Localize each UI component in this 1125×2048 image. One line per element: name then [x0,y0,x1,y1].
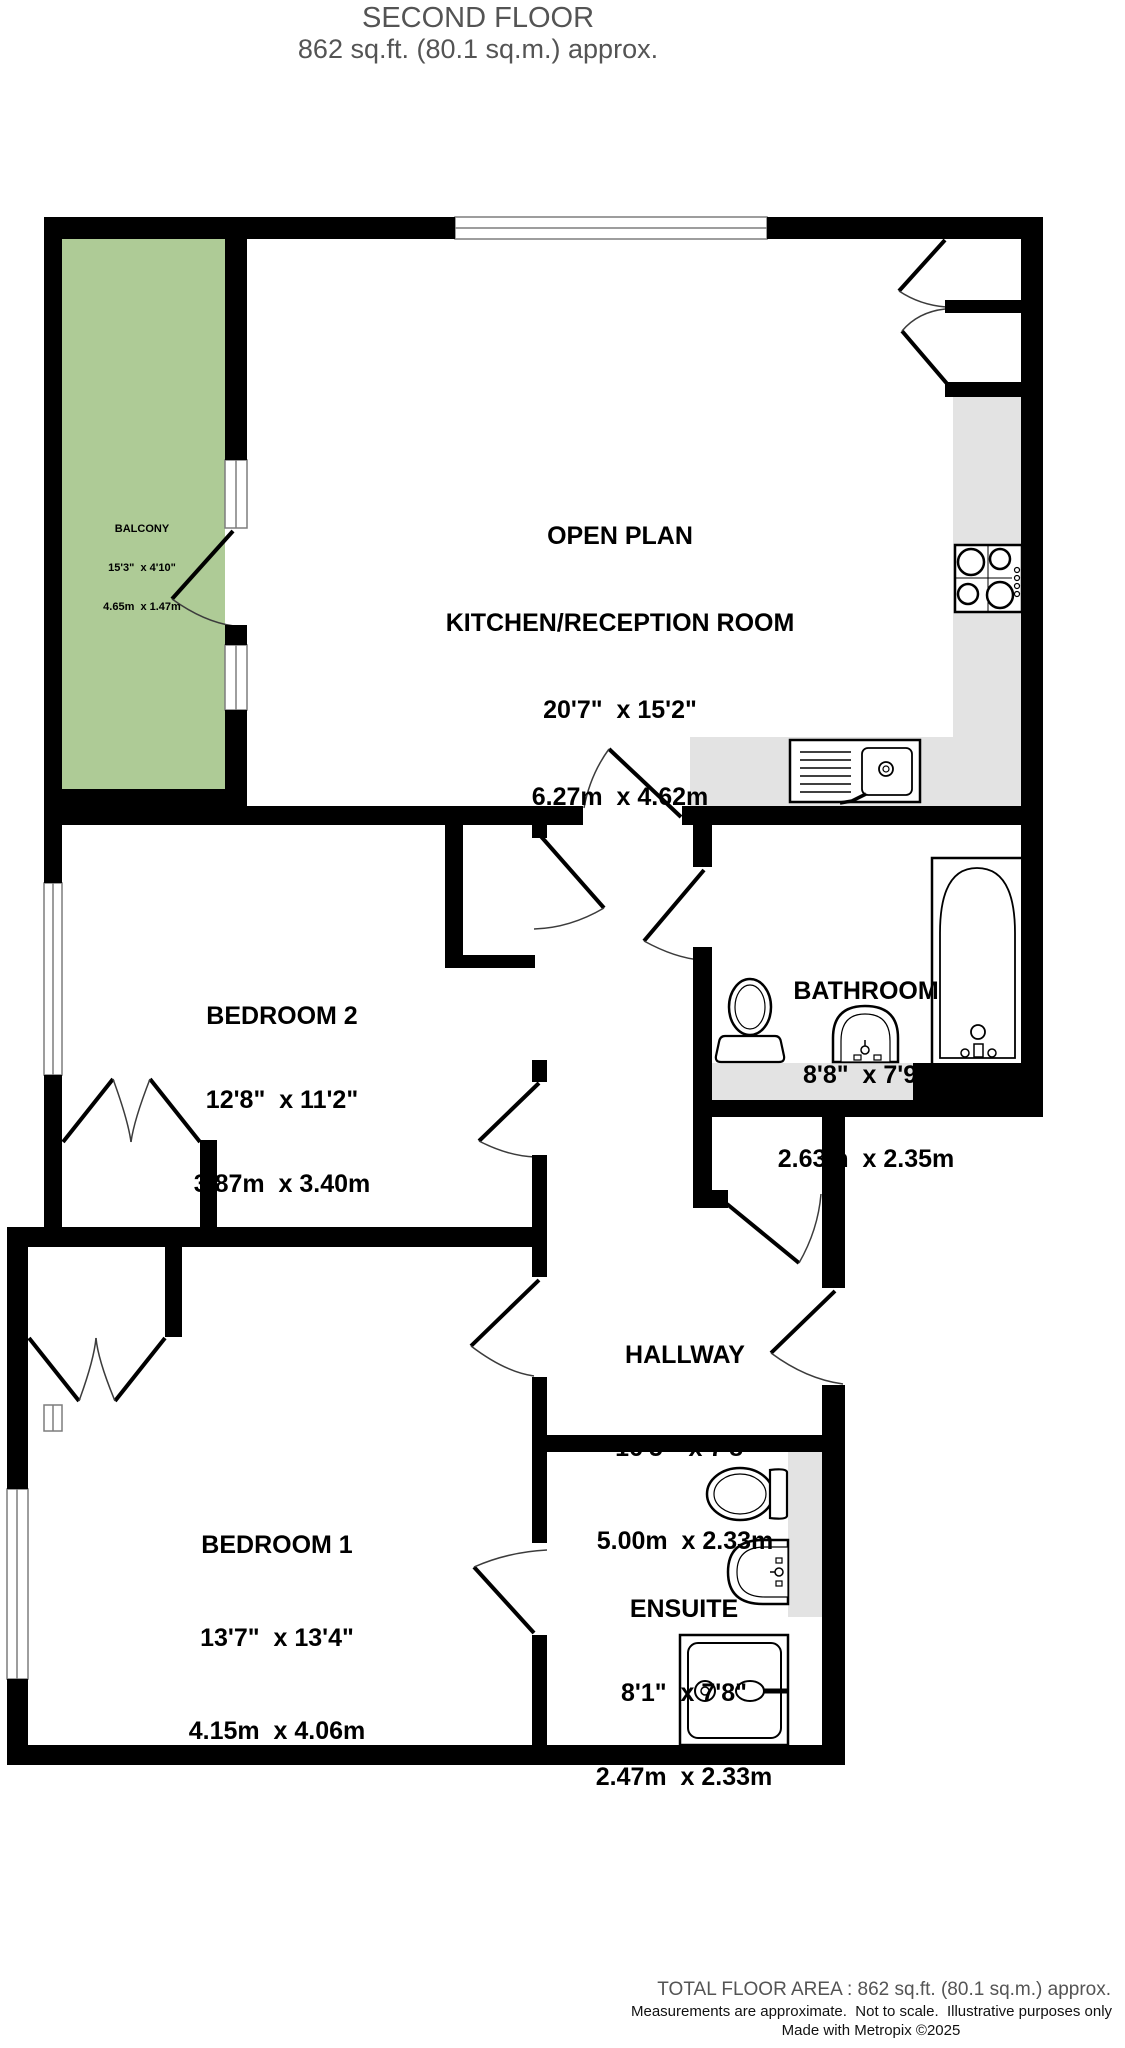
bedroom2-window [44,883,62,1075]
storage2-door [902,331,949,386]
bedroom2-door [479,1083,539,1141]
kitchen-label: OPEN PLAN KITCHEN/RECEPTION ROOM 20'7" x… [420,464,820,870]
balcony-label: BALCONY 15'3" x 4'10" 4.65m x 1.47m [57,497,227,640]
storage1-label: STORAGE [948,258,1020,278]
balcony-window-upper [225,460,247,528]
bathroom-label: BATHROOM 8'8" x 7'9" 2.63m x 2.35m [716,921,1016,1229]
storage1-door [899,240,945,291]
bedroom1-door [471,1280,539,1346]
disclaimer: Measurements are approximate. Not to sca… [631,2002,1111,2021]
bedroom1-window-small [44,1405,62,1431]
ensuite-label: ENSUITE 8'1" x 7'8" 2.47m x 2.33m [534,1539,834,1847]
stove-icon [955,545,1022,612]
cupboard2-label: CUPBOARD [696,1143,822,1169]
bathroom-door [644,870,704,941]
wardrobe1-label: WARDROBE [60,1183,200,1211]
wardrobe2-label: WARDROBE [25,1276,165,1304]
wardrobe2-door-right [115,1338,165,1401]
wardrobe2-door-left [29,1338,79,1401]
cupboard1-label: CUPBOARD [459,878,534,898]
wardrobe1-door-left [63,1079,113,1142]
bedroom1-window [7,1489,28,1679]
ensuite-door [474,1567,534,1633]
storage2-label: STORAGE [948,342,1020,362]
footer: TOTAL FLOOR AREA : 862 sq.ft. (80.1 sq.m… [631,1978,1111,2040]
bedroom1-label: BEDROOM 1 13'7" x 13'4" 4.15m x 4.06m [127,1468,427,1809]
floor-plan-page: SECOND FLOOR 862 sq.ft. (80.1 sq.m.) app… [0,0,1125,2048]
balcony-window-lower [225,645,247,710]
metropix-credit: Made with Metropix ©2025 [631,2021,1111,2040]
total-floor-area: TOTAL FLOOR AREA : 862 sq.ft. (80.1 sq.m… [631,1978,1111,2002]
kitchen-top-window [455,217,767,239]
